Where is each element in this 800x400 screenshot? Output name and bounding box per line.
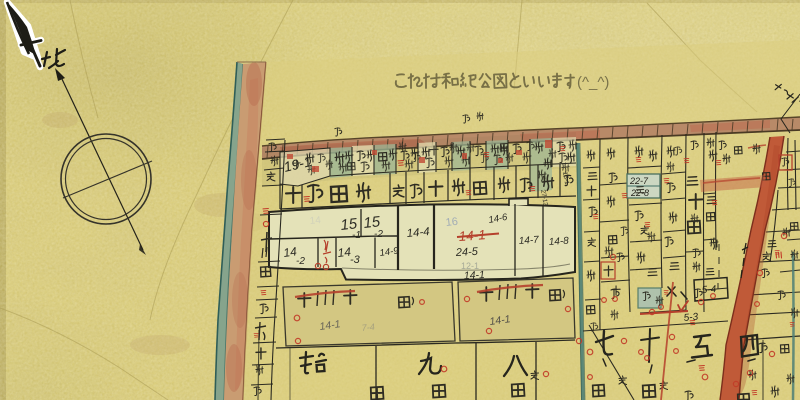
svg-text:-3: -3	[350, 254, 361, 266]
svg-text:-1: -1	[352, 230, 361, 241]
svg-text:14-7: 14-7	[518, 235, 539, 247]
svg-text:-2: -2	[374, 229, 383, 240]
svg-text:7-4: 7-4	[361, 322, 375, 333]
svg-text:14-8: 14-8	[548, 236, 569, 248]
svg-text:14: 14	[309, 215, 321, 227]
svg-text:22-7: 22-7	[629, 176, 649, 186]
svg-text:16: 16	[445, 216, 458, 229]
svg-text:-2: -2	[296, 256, 305, 267]
svg-text:5-3: 5-3	[683, 311, 699, 323]
svg-text:12-1: 12-1	[461, 261, 479, 271]
svg-text:24-5: 24-5	[455, 246, 479, 259]
svg-text:14-4: 14-4	[406, 226, 430, 240]
